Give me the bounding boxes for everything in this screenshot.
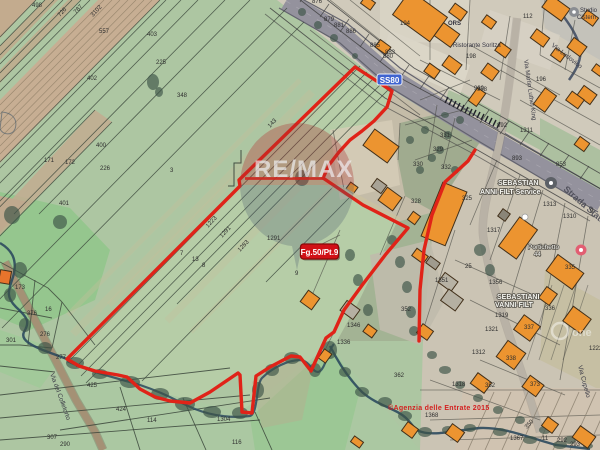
svg-text:352: 352 bbox=[485, 383, 496, 389]
svg-text:276: 276 bbox=[40, 332, 51, 338]
svg-text:307: 307 bbox=[47, 435, 58, 441]
svg-text:198: 198 bbox=[466, 54, 477, 60]
svg-text:853: 853 bbox=[556, 162, 567, 168]
svg-text:171: 171 bbox=[44, 158, 55, 164]
svg-text:290: 290 bbox=[60, 442, 71, 448]
svg-text:373: 373 bbox=[530, 382, 541, 388]
svg-text:225: 225 bbox=[156, 60, 167, 66]
svg-text:425: 425 bbox=[87, 383, 98, 389]
svg-text:338: 338 bbox=[506, 356, 517, 362]
svg-text:one: one bbox=[572, 327, 592, 339]
svg-text:1313: 1313 bbox=[543, 202, 557, 208]
svg-text:876: 876 bbox=[312, 0, 323, 5]
svg-text:1367: 1367 bbox=[510, 436, 524, 442]
svg-text:114: 114 bbox=[147, 418, 157, 424]
svg-text:Fg.50/Pt.9: Fg.50/Pt.9 bbox=[301, 248, 339, 257]
svg-text:1317: 1317 bbox=[487, 228, 501, 234]
svg-text:400: 400 bbox=[96, 143, 107, 149]
svg-text:331: 331 bbox=[440, 133, 451, 139]
svg-text:325: 325 bbox=[462, 196, 473, 202]
svg-text:329: 329 bbox=[433, 147, 444, 153]
svg-text:173: 173 bbox=[15, 285, 26, 291]
svg-text:SEBASTIANI: SEBASTIANI bbox=[497, 294, 539, 301]
svg-text:226: 226 bbox=[100, 166, 111, 172]
svg-text:352: 352 bbox=[401, 307, 412, 313]
svg-text:RE/MAX: RE/MAX bbox=[254, 156, 353, 183]
svg-text:ANNI-FILT Service: ANNI-FILT Service bbox=[480, 189, 541, 196]
svg-text:44: 44 bbox=[534, 252, 541, 258]
svg-text:1319: 1319 bbox=[495, 313, 509, 319]
svg-text:880: 880 bbox=[383, 54, 394, 60]
svg-text:Ristorante Soritza: Ristorante Soritza bbox=[453, 43, 501, 49]
svg-text:348: 348 bbox=[177, 93, 188, 99]
svg-text:885: 885 bbox=[370, 43, 381, 49]
svg-text:401: 401 bbox=[59, 201, 70, 207]
svg-text:1356: 1356 bbox=[489, 280, 503, 286]
svg-text:277: 277 bbox=[56, 355, 67, 361]
svg-text:194: 194 bbox=[400, 21, 411, 27]
svg-text:293: 293 bbox=[570, 442, 581, 448]
svg-text:196: 196 bbox=[536, 77, 547, 83]
svg-text:1336: 1336 bbox=[337, 340, 351, 346]
svg-text:881: 881 bbox=[334, 23, 345, 29]
svg-text:328: 328 bbox=[411, 199, 422, 205]
svg-text:332: 332 bbox=[441, 165, 452, 171]
svg-text:1312: 1312 bbox=[472, 350, 486, 356]
svg-text:1311: 1311 bbox=[520, 128, 534, 134]
svg-text:330: 330 bbox=[413, 162, 424, 168]
svg-text:SEBASTIAN: SEBASTIAN bbox=[498, 180, 538, 187]
svg-text:1368: 1368 bbox=[425, 413, 439, 419]
svg-text:1310: 1310 bbox=[563, 214, 577, 220]
svg-text:403: 403 bbox=[147, 32, 158, 38]
svg-text:930: 930 bbox=[474, 86, 485, 92]
svg-text:424: 424 bbox=[116, 407, 127, 413]
svg-text:112: 112 bbox=[523, 14, 533, 20]
svg-text:13: 13 bbox=[192, 257, 199, 263]
svg-text:VANNI-FILT: VANNI-FILT bbox=[495, 302, 534, 309]
svg-text:402: 402 bbox=[87, 76, 98, 82]
svg-text:292: 292 bbox=[557, 438, 568, 444]
svg-text:335: 335 bbox=[565, 265, 576, 271]
svg-text:301: 301 bbox=[6, 338, 17, 344]
svg-text:©Agenzia delle Entrate 2015: ©Agenzia delle Entrate 2015 bbox=[388, 404, 490, 412]
svg-text:1346: 1346 bbox=[347, 323, 361, 329]
svg-text:336: 336 bbox=[545, 306, 556, 312]
svg-text:337: 337 bbox=[524, 325, 535, 331]
svg-text:172: 172 bbox=[65, 160, 76, 166]
svg-text:1351: 1351 bbox=[435, 278, 449, 284]
svg-text:1291: 1291 bbox=[267, 236, 281, 242]
svg-text:ORS: ORS bbox=[448, 21, 461, 27]
svg-text:886: 886 bbox=[346, 29, 357, 35]
svg-text:892: 892 bbox=[497, 123, 508, 129]
svg-text:116: 116 bbox=[232, 440, 242, 446]
svg-text:498: 498 bbox=[32, 3, 43, 9]
svg-text:376: 376 bbox=[27, 311, 38, 317]
svg-text:Cistern: Cistern bbox=[577, 15, 596, 21]
svg-text:1222: 1222 bbox=[589, 346, 600, 352]
svg-text:SS80: SS80 bbox=[380, 76, 400, 85]
svg-text:1304: 1304 bbox=[217, 417, 231, 423]
svg-text:893: 893 bbox=[512, 156, 523, 162]
svg-text:Studio: Studio bbox=[580, 8, 598, 14]
svg-text:16: 16 bbox=[45, 307, 52, 313]
svg-text:1318: 1318 bbox=[452, 382, 466, 388]
svg-text:1321: 1321 bbox=[485, 327, 499, 333]
svg-text:557: 557 bbox=[99, 29, 110, 35]
svg-text:362: 362 bbox=[394, 373, 405, 379]
svg-text:Portichetto: Portichetto bbox=[528, 244, 559, 251]
svg-text:11: 11 bbox=[542, 436, 549, 442]
svg-text:25: 25 bbox=[465, 264, 472, 270]
